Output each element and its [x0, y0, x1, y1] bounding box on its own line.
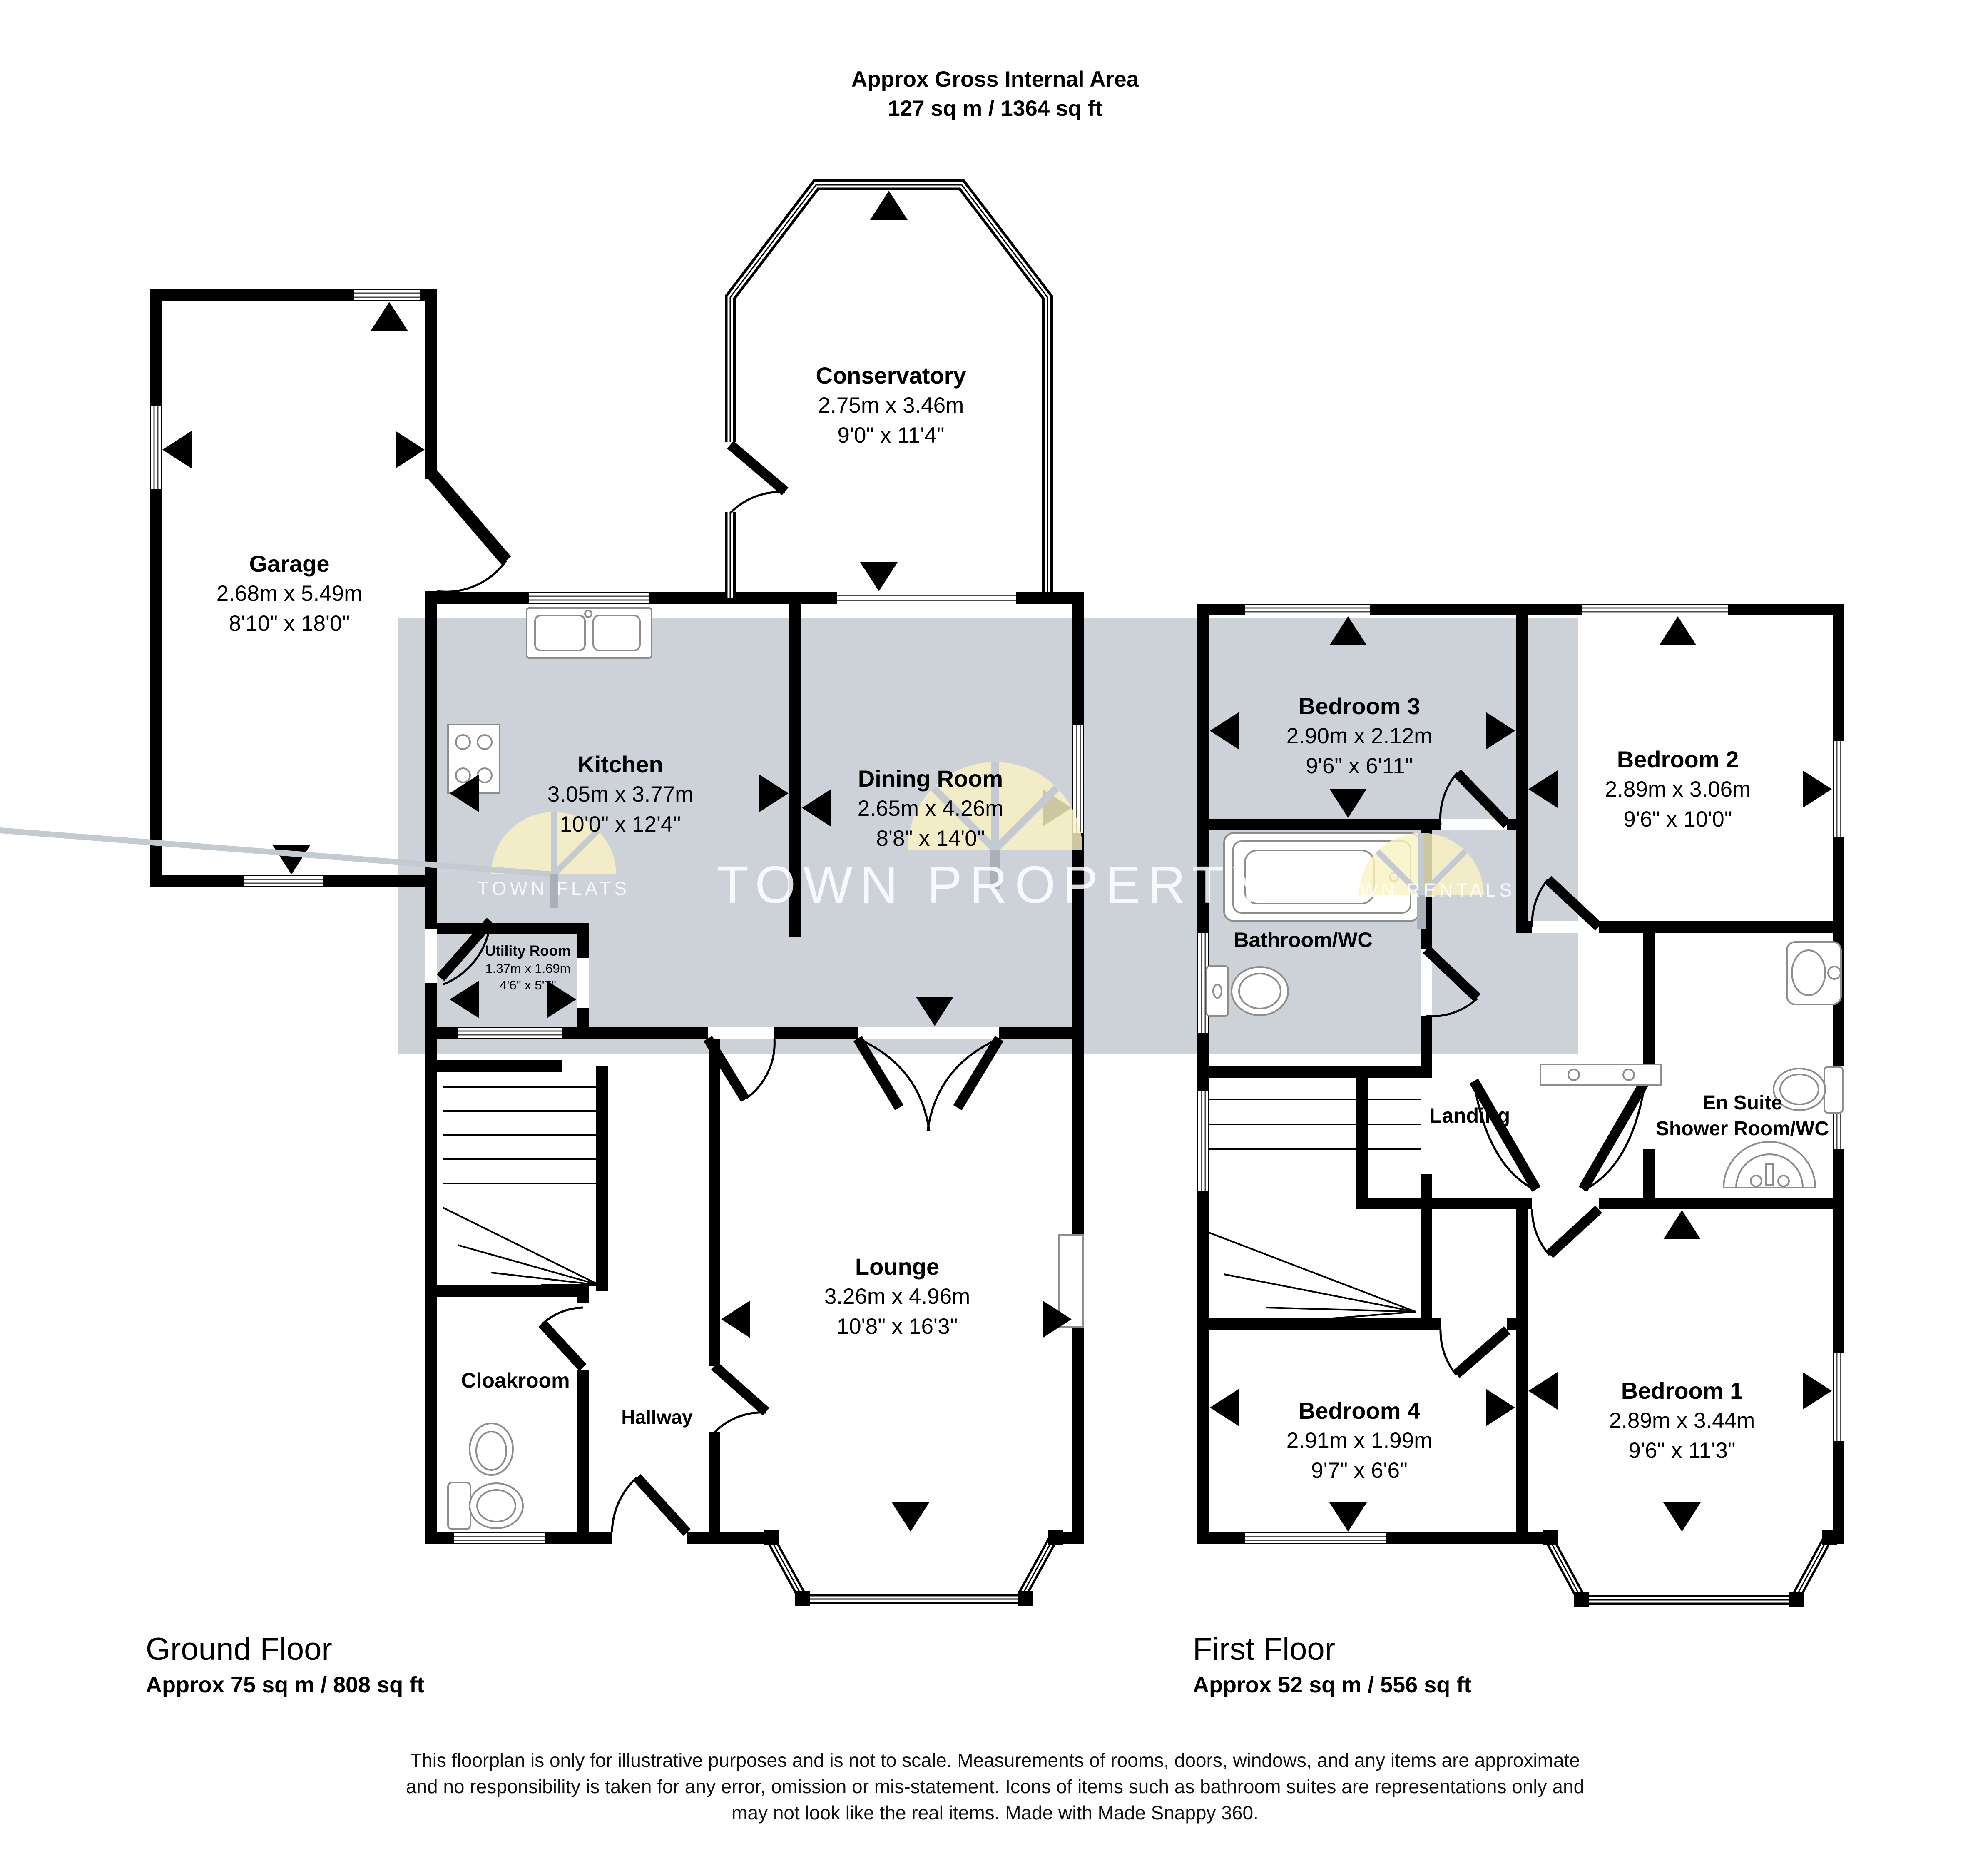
page-title: Approx Gross Internal Area 127 sq m / 13…: [851, 65, 1139, 123]
room-label-bedroom2: Bedroom 2 2.89m x 3.06m 9'6" x 10'0": [1605, 745, 1751, 835]
sink-icon: [527, 608, 652, 658]
room-label-bathroom: Bathroom/WC: [1234, 928, 1372, 952]
vanity-counter-icon: [1540, 1064, 1661, 1085]
basin-icon: [470, 1423, 513, 1475]
disclaimer-line2: and no responsibility is taken for any e…: [406, 1774, 1584, 1800]
room-label-landing: Landing: [1429, 1104, 1510, 1128]
title-line1: Approx Gross Internal Area: [851, 65, 1139, 94]
watermark-left: TOWN FLATS: [478, 878, 630, 899]
room-label-lounge: Lounge 3.26m x 4.96m 10'8" x 16'3": [824, 1252, 970, 1342]
room-label-bedroom3: Bedroom 3 2.90m x 2.12m 9'6" x 6'11": [1286, 691, 1433, 781]
ensuite-basin-icon: [1787, 942, 1841, 1004]
disclaimer-line3: may not look like the real items. Made w…: [406, 1800, 1584, 1826]
disclaimer-line1: This floorplan is only for illustrative …: [406, 1747, 1584, 1774]
toilet-icon: [448, 1482, 523, 1529]
room-label-hallway: Hallway: [621, 1406, 692, 1428]
bay-window-lounge: [764, 1530, 1063, 1606]
title-line2: 127 sq m / 1364 sq ft: [851, 94, 1139, 123]
room-label-bedroom4: Bedroom 4 2.91m x 1.99m 9'7" x 6'6": [1286, 1396, 1433, 1486]
room-label-kitchen: Kitchen 3.05m x 3.77m 10'0" x 12'4": [547, 750, 694, 840]
room-label-bedroom1: Bedroom 1 2.89m x 3.44m 9'6" x 11'3": [1609, 1376, 1755, 1466]
room-label-ensuite: En Suite Shower Room/WC: [1656, 1090, 1829, 1142]
disclaimer: This floorplan is only for illustrative …: [406, 1747, 1584, 1826]
watermark-right: TOWN RENTALS: [1328, 879, 1515, 901]
chimney-breast: [1059, 1235, 1083, 1327]
bay-window-bedroom1: [1543, 1530, 1837, 1607]
room-label-garage: Garage 2.68m x 5.49m 8'10" x 18'0": [216, 549, 363, 639]
room-label-dining: Dining Room 2.65m x 4.26m 8'8" x 14'0": [858, 764, 1004, 854]
room-label-conservatory: Conservatory 2.75m x 3.46m 9'0" x 11'4": [816, 361, 966, 451]
stairs-icon: [437, 1060, 608, 1291]
watermark-center: TOWN PROPERTY: [717, 854, 1274, 915]
floorplan-page: TOWN FLATS TOWN PROPERTY TOWN RENTALS Ap…: [0, 0, 1988, 1851]
floorplan-drawing: [0, 0, 1988, 1851]
shower-icon: [1724, 1142, 1815, 1188]
toilet-icon-bathroom: [1207, 966, 1288, 1016]
room-label-cloakroom: Cloakroom: [461, 1368, 570, 1393]
ground-floor-caption: Ground Floor Approx 75 sq m / 808 sq ft: [146, 1631, 424, 1702]
room-label-utility: Utility Room 1.37m x 1.69m 4'6" x 5'7": [485, 942, 571, 994]
first-floor-caption: First Floor Approx 52 sq m / 556 sq ft: [1193, 1631, 1471, 1702]
